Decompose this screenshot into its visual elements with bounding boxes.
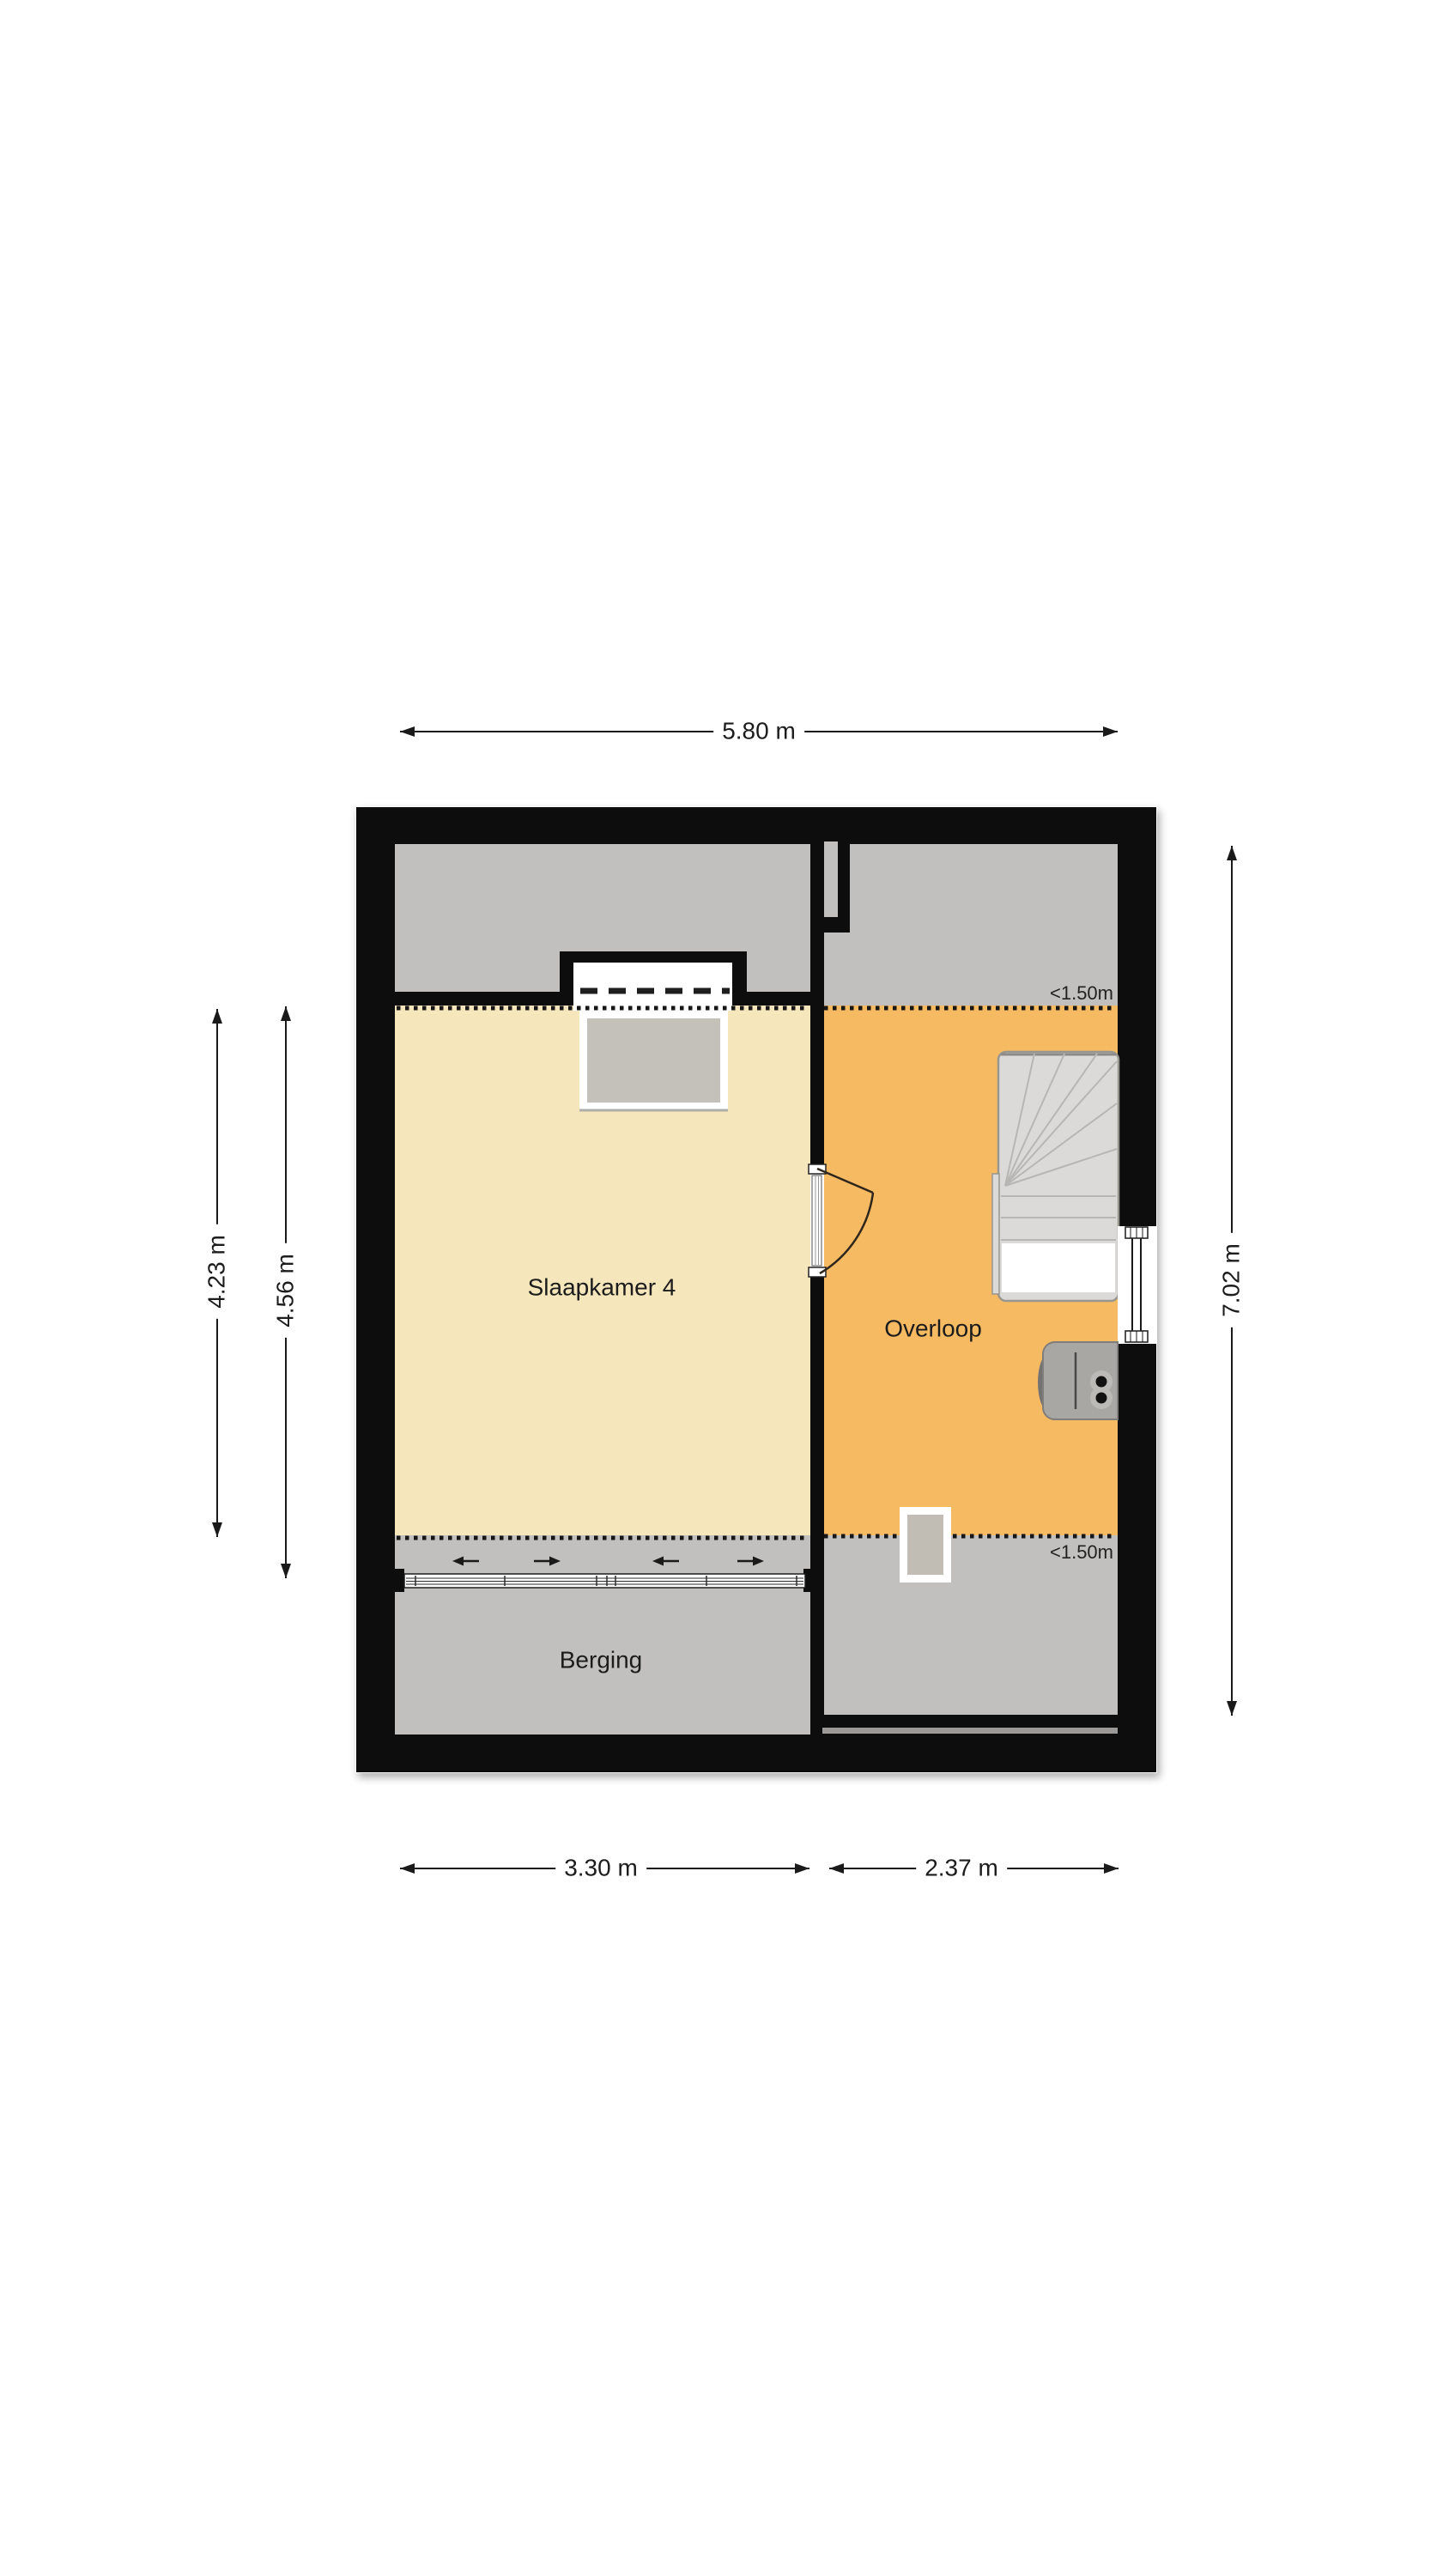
floorplan-page: 5.80 m 4.23 m 4.56 m 7.02 m 3.30 m 2.37 … <box>0 0 1449 2576</box>
dimension-left-outer-label: 4.23 m <box>204 1224 231 1319</box>
room-label-slaapkamer: Slaapkamer 4 <box>528 1275 676 1302</box>
window-right-facade <box>1118 1226 1157 1344</box>
chimney-duct <box>900 1507 951 1583</box>
dimension-bottom-right-label: 2.37 m <box>916 1856 1007 1882</box>
dimension-left-inner-label: 4.56 m <box>273 1243 300 1338</box>
dimension-bottom-left-label: 3.30 m <box>555 1856 646 1882</box>
attic-area-right <box>824 844 1118 1005</box>
room-floor-berging <box>395 1535 810 1735</box>
height-marker-top: <1.50m <box>1050 983 1113 1004</box>
dormer-window <box>560 951 747 1011</box>
skylight-panel <box>579 1011 728 1110</box>
dimension-top-label: 5.80 m <box>713 719 804 745</box>
height-marker-bottom: <1.50m <box>1050 1542 1113 1563</box>
room-label-overloop: Overloop <box>884 1316 982 1343</box>
bottom-wall-vent-line <box>822 1728 1118 1734</box>
room-label-berging: Berging <box>560 1648 643 1674</box>
staircase <box>992 1052 1119 1301</box>
duct-shaft <box>810 840 850 933</box>
boiler-unit <box>1038 1342 1118 1419</box>
stairs-landing <box>1002 1243 1115 1292</box>
dimension-right-label: 7.02 m <box>1219 1233 1246 1327</box>
